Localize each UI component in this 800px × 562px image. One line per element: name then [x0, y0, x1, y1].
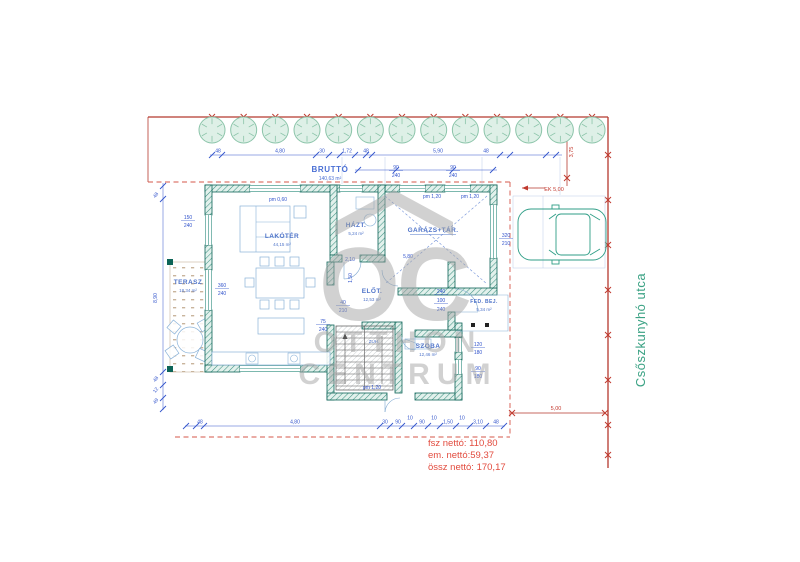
dim-label: 240 — [184, 223, 193, 229]
room-area-fedbej: 5,34 m² — [476, 307, 492, 312]
dim-label: 5,90 — [433, 149, 443, 155]
dim-label: 30 — [382, 420, 388, 426]
room-label-lakoter: LAKÓTÉR — [265, 231, 299, 240]
dim-label: 10 — [459, 416, 465, 422]
site-plan-page: 484,80301,72485,9048484,8030901090101,50… — [0, 0, 800, 562]
tree-icon — [421, 117, 447, 143]
dim-label: 48 — [152, 375, 160, 383]
side-table — [294, 206, 306, 218]
dim-label: 150 — [184, 215, 193, 221]
window — [250, 185, 300, 192]
area-summary: fsz nettó: 110,80 em. nettó:59,37 össz n… — [428, 438, 506, 473]
window — [490, 205, 497, 258]
chair — [290, 300, 299, 309]
window — [205, 270, 212, 310]
dim-label: 90 — [419, 420, 425, 426]
dim-label: 48 — [197, 420, 203, 426]
dim-label: 90 — [393, 165, 399, 171]
summary-floor-net: em. nettó:59,37 — [428, 450, 494, 461]
chair — [306, 278, 315, 287]
watermark-otthon: OTTHON — [314, 326, 483, 359]
dim-label: 12 — [152, 386, 160, 394]
dim-label: EK 5,00 — [544, 187, 564, 193]
dim-label: 48 — [152, 191, 160, 199]
dim-label: 90 — [450, 165, 456, 171]
gross-label: BRUTTÓ — [312, 165, 349, 174]
dim-label: 10 — [431, 416, 437, 422]
chair — [275, 300, 284, 309]
chair — [260, 300, 269, 309]
car-roof — [556, 214, 590, 255]
window — [205, 215, 212, 245]
chair — [245, 278, 254, 287]
dim-label: 10 — [407, 416, 413, 422]
dim-label: 30 — [319, 149, 325, 155]
tree-icon — [199, 117, 225, 143]
dim-label: 48 — [493, 420, 499, 426]
summary-total-net: össz nettó: 170,17 — [428, 462, 506, 473]
chair — [290, 257, 299, 266]
tree-icon — [579, 117, 605, 143]
dim-label: 3,75 — [569, 147, 575, 158]
dim-label: pm 1,20 — [461, 194, 479, 200]
dim-label: 1,50 — [443, 420, 453, 426]
gross-area: 140,63 m² — [319, 176, 342, 182]
dim-label: 48 — [215, 149, 221, 155]
dim-label: 320 — [502, 233, 511, 239]
dim-label: 210 — [502, 241, 511, 247]
kitchen-island — [258, 318, 304, 334]
ek-arrow — [522, 186, 528, 191]
room-area-terasz: 18,34 m² — [179, 288, 197, 293]
car-mirror — [552, 205, 559, 209]
dim-label: 240 — [392, 173, 401, 179]
tree-icon — [231, 117, 257, 143]
dim-label: 49 — [152, 397, 160, 405]
car-mirror — [552, 260, 559, 264]
window — [240, 365, 300, 372]
window — [400, 185, 425, 192]
dim-label: 90 — [395, 420, 401, 426]
room-label-terasz: TERASZ — [174, 279, 202, 286]
dim-label: 240 — [218, 291, 227, 297]
car — [518, 205, 606, 264]
dim-label: pm 0,60 — [269, 197, 287, 203]
watermark-logo: OC OTTHON CENTRUM — [299, 190, 498, 391]
tree-icon — [547, 117, 573, 143]
dim-label: 1,72 — [342, 149, 352, 155]
tree-row — [199, 117, 605, 143]
tree-icon — [357, 117, 383, 143]
summary-ground-net: fsz nettó: 110,80 — [428, 438, 498, 449]
dim-label: 3,10 — [473, 420, 483, 426]
porch-post — [485, 323, 489, 327]
street-name: Csőszkunyhó utca — [633, 273, 648, 387]
dining-table — [256, 268, 304, 298]
dim-label: pm 1,20 — [423, 194, 441, 200]
window — [340, 185, 362, 192]
dim-label: 48 — [483, 149, 489, 155]
floor-plan-canvas: 484,80301,72485,9048484,8030901090101,50… — [0, 0, 800, 562]
dim-label: 240 — [449, 173, 458, 179]
terrace — [165, 259, 211, 372]
window — [445, 185, 470, 192]
dim-label: 8,90 — [153, 293, 159, 303]
dim-label: 5,00 — [551, 406, 562, 412]
chair — [260, 257, 269, 266]
chair — [275, 257, 284, 266]
tree-icon — [326, 117, 352, 143]
room-area-lakoter: 44,15 m² — [273, 242, 291, 247]
room-label-fedbej: FED. BEJ. — [470, 299, 498, 305]
tree-icon — [516, 117, 542, 143]
dim-label: 4,80 — [275, 149, 285, 155]
terrace-post — [167, 259, 173, 265]
dim-label: 360 — [218, 283, 227, 289]
dim-label: 48 — [363, 149, 369, 155]
tree-icon — [294, 117, 320, 143]
tree-icon — [452, 117, 478, 143]
watermark-centrum: CENTRUM — [299, 358, 498, 391]
tree-icon — [262, 117, 288, 143]
tree-icon — [389, 117, 415, 143]
dim-label: 4,80 — [290, 420, 300, 426]
terrace-post — [167, 366, 173, 372]
tree-icon — [484, 117, 510, 143]
